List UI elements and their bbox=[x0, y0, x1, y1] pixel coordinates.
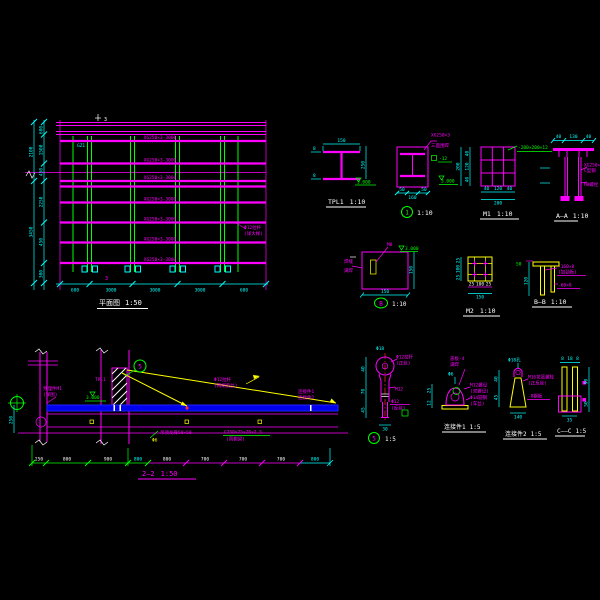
detail-cc: 8 18 8 90 50 35 C——C1:5 bbox=[555, 356, 590, 436]
detail-m2: 25 100 25 25 100 25 150 M21:10 bbox=[456, 257, 501, 316]
svg-text:3000: 3000 bbox=[106, 288, 117, 294]
svg-text:3.000: 3.000 bbox=[86, 395, 100, 401]
svg-text:160: 160 bbox=[408, 195, 416, 201]
svg-text:盖板-4: 盖板-4 bbox=[450, 355, 465, 362]
detail-m1: -200×200×12 40 120 40 200 40 120 40 200 … bbox=[456, 145, 553, 219]
svg-text:TPL1: TPL1 bbox=[95, 377, 106, 383]
svg-text:40: 40 bbox=[556, 134, 562, 140]
beam-label: XG250×3-3000 bbox=[144, 175, 177, 181]
svg-text:满焊: 满焊 bbox=[344, 267, 353, 274]
plan-bottom-dims: 600 3000 3000 3000 600 3 bbox=[56, 276, 269, 294]
svg-text:(详图): (详图) bbox=[43, 391, 57, 398]
plan-beam-labels: XG250×3-3000 XG250×3-3000 XG250×3-3000 X… bbox=[144, 135, 177, 263]
svg-text:Φ6: Φ6 bbox=[152, 438, 158, 444]
svg-text:8: 8 bbox=[313, 173, 316, 179]
svg-text:120: 120 bbox=[524, 277, 530, 285]
svg-text:700: 700 bbox=[239, 457, 247, 463]
beam-label: XG250×3-3000 bbox=[144, 197, 177, 203]
detail-tpl1: 150 8 8 250 3.000 TPL11:10 bbox=[311, 138, 376, 207]
svg-text:-160×8: -160×8 bbox=[558, 264, 575, 270]
lj1-title: 连接件11:5 bbox=[444, 423, 481, 431]
svg-text:Φ12: Φ12 bbox=[391, 399, 399, 405]
svg-text:Φ18孔: Φ18孔 bbox=[508, 357, 521, 364]
svg-text:3000: 3000 bbox=[150, 288, 161, 294]
svg-text:M12: M12 bbox=[395, 387, 403, 393]
svg-text:-60×8: -60×8 bbox=[558, 283, 572, 289]
detail-1-number: 1 bbox=[405, 210, 409, 217]
svg-text:XG250×3: XG250×3 bbox=[584, 163, 600, 169]
svg-text:800: 800 bbox=[63, 457, 71, 463]
svg-text:40: 40 bbox=[484, 186, 490, 192]
svg-text:250: 250 bbox=[9, 416, 15, 424]
svg-text:(详大样): (详大样) bbox=[244, 230, 263, 237]
svg-text:30: 30 bbox=[382, 427, 388, 433]
plan-view: 3 XG250×3-3000 XG250×3-3000 XG250×3-3000 bbox=[25, 114, 269, 309]
svg-text:Φ6: Φ6 bbox=[448, 372, 454, 378]
svg-text:(车丝): (车丝) bbox=[470, 400, 484, 407]
detail-aa: 40 130 40 XG250×3 C型钢 M8螺栓 A—A1:10 bbox=[540, 134, 600, 221]
svg-text:150: 150 bbox=[381, 289, 389, 295]
svg-text:满焊: 满焊 bbox=[450, 361, 459, 368]
lj2-title: 连接件21:5 bbox=[505, 430, 542, 438]
svg-text:25: 25 bbox=[456, 275, 462, 281]
svg-text:800: 800 bbox=[311, 457, 319, 463]
cad-viewport: 3 XG250×3-3000 XG250×3-3000 XG250×3-3000 bbox=[0, 0, 600, 600]
svg-text:150: 150 bbox=[476, 295, 484, 301]
svg-text:100: 100 bbox=[476, 282, 484, 288]
svg-text:(两端反丝): (两端反丝) bbox=[214, 382, 237, 389]
svg-text:-8钢板: -8钢板 bbox=[528, 393, 543, 400]
svg-text:2100: 2100 bbox=[29, 146, 35, 157]
svg-text:70: 70 bbox=[361, 389, 367, 395]
svg-text:50: 50 bbox=[584, 401, 590, 407]
svg-text:三面围焊: 三面围焊 bbox=[431, 142, 449, 149]
beam-label: XG250×3-3000 bbox=[144, 158, 177, 164]
background bbox=[0, 0, 600, 600]
plan-mark-3: 3 bbox=[105, 276, 108, 282]
svg-text:连接件1: 连接件1 bbox=[298, 388, 314, 395]
beam-label: XG250×3-3000 bbox=[144, 237, 177, 243]
svg-text:C250×75×20×2.5: C250×75×20×2.5 bbox=[224, 430, 262, 436]
svg-text:3.000: 3.000 bbox=[405, 246, 419, 252]
svg-text:450: 450 bbox=[39, 168, 45, 176]
svg-text:800: 800 bbox=[163, 457, 171, 463]
svg-text:Φ12拉杆: Φ12拉杆 bbox=[244, 224, 262, 231]
svg-text:50: 50 bbox=[399, 187, 405, 193]
plan-title: 平面图1:50 bbox=[99, 299, 142, 307]
svg-text:25: 25 bbox=[427, 388, 433, 394]
svg-text:40: 40 bbox=[361, 366, 367, 372]
svg-text:900: 900 bbox=[104, 457, 112, 463]
svg-text:M8: M8 bbox=[387, 242, 393, 248]
svg-text:(正丝): (正丝) bbox=[396, 360, 410, 367]
aa-title: A—A1:10 bbox=[556, 212, 588, 220]
svg-text:M12螺母: M12螺母 bbox=[470, 382, 488, 389]
svg-text:18: 18 bbox=[567, 356, 573, 362]
svg-text:120: 120 bbox=[494, 186, 502, 192]
svg-text:-200×200×12: -200×200×12 bbox=[518, 145, 548, 151]
elev-callout: 5 bbox=[138, 364, 142, 371]
cad-canvas: 3 XG250×3-3000 XG250×3-3000 XG250×3-3000 bbox=[0, 0, 600, 600]
svg-text:25: 25 bbox=[486, 282, 492, 288]
svg-text:800: 800 bbox=[134, 457, 142, 463]
svg-text:8: 8 bbox=[561, 356, 564, 362]
svg-text:3.000: 3.000 bbox=[357, 180, 371, 186]
b-plate-letter: B bbox=[379, 301, 383, 308]
cc-title: C——C1:5 bbox=[557, 428, 587, 435]
elevation-2-2: 5 3.000 预埋件M1 (详图) TPL1 Φ12拉杆 (两端反丝) 连接件… bbox=[8, 348, 348, 479]
svg-text:150: 150 bbox=[337, 138, 345, 144]
svg-text:700: 700 bbox=[277, 457, 285, 463]
column-grid-lines bbox=[73, 136, 238, 272]
svg-text:3450: 3450 bbox=[29, 226, 35, 237]
m2-title: M21:10 bbox=[466, 307, 496, 315]
svg-text:8: 8 bbox=[576, 356, 579, 362]
svg-text:1:10: 1:10 bbox=[417, 209, 433, 217]
detail-bb: -160×8 (加劲板) -60×8 50 120 B—B1:10 bbox=[516, 261, 586, 307]
svg-text:250: 250 bbox=[361, 161, 367, 169]
svg-text:(加劲板): (加劲板) bbox=[558, 269, 577, 276]
detail-1: XG250×3 三面围焊 -12 3.000 50 160 50 1 1:10 bbox=[395, 133, 458, 218]
svg-text:50: 50 bbox=[516, 262, 522, 268]
beam-label: XG250×3-3000 bbox=[144, 217, 177, 223]
svg-text:C型钢: C型钢 bbox=[584, 167, 596, 174]
m1-title: M11:10 bbox=[483, 210, 513, 218]
detail-lj1: Φ6 盖板-4 满焊 25 12 M12螺母 (双螺母) Φ14圆钢 (车丝) … bbox=[427, 355, 489, 432]
svg-text:Φ14圆钢: Φ14圆钢 bbox=[470, 394, 488, 401]
svg-text:150: 150 bbox=[409, 266, 415, 274]
svg-text:45: 45 bbox=[361, 407, 367, 413]
svg-text:25: 25 bbox=[469, 282, 475, 288]
svg-text:25: 25 bbox=[456, 258, 462, 264]
svg-text:120: 120 bbox=[465, 162, 471, 170]
svg-text:M16花篮螺栓: M16花篮螺栓 bbox=[528, 374, 555, 381]
svg-text:130: 130 bbox=[569, 134, 577, 140]
canopy-beam bbox=[47, 405, 338, 411]
svg-text:90: 90 bbox=[584, 379, 590, 385]
plan-note: Φ12拉杆 (详大样) bbox=[236, 223, 263, 237]
svg-text:250: 250 bbox=[35, 457, 43, 463]
tpl1-title: TPL11:10 bbox=[328, 198, 365, 206]
svg-text:12: 12 bbox=[427, 400, 433, 406]
svg-text:1500: 1500 bbox=[39, 144, 45, 155]
svg-text:40: 40 bbox=[465, 151, 471, 157]
detail-5-rod-end: Φ18 40 70 45 30 Φ12拉杆 (正丝) M12 Φ12 (反丝) … bbox=[361, 346, 414, 444]
svg-text:1:5: 1:5 bbox=[385, 436, 396, 443]
bb-title: B—B1:10 bbox=[534, 298, 566, 306]
svg-text:Φ18: Φ18 bbox=[376, 346, 384, 352]
detail-b-plate: M8 焊缝 满焊 3.000 150 150 B 1:10 bbox=[344, 242, 419, 308]
svg-text:600: 600 bbox=[240, 288, 248, 294]
plan-column-label: GZ1 bbox=[77, 143, 85, 149]
svg-text:35: 35 bbox=[567, 418, 573, 424]
svg-text:-12: -12 bbox=[439, 156, 447, 162]
svg-text:(正反丝): (正反丝) bbox=[528, 380, 547, 387]
svg-text:连接件2: 连接件2 bbox=[298, 394, 314, 401]
wall-hatch bbox=[112, 368, 127, 406]
svg-text:40: 40 bbox=[465, 177, 471, 183]
svg-text:吊顶龙骨50×50: 吊顶龙骨50×50 bbox=[160, 429, 192, 436]
svg-text:(反丝): (反丝) bbox=[391, 405, 405, 412]
column-base-plates bbox=[82, 266, 231, 272]
elev-bottom-dims: 250 800 900 800 800 700 700 700 800 bbox=[29, 445, 333, 466]
detail-lj2: Φ18孔 40 45 M16花篮螺栓 (正反丝) -8钢板 140 连接件21:… bbox=[494, 357, 555, 440]
svg-text:50: 50 bbox=[421, 187, 427, 193]
svg-text:600: 600 bbox=[39, 126, 45, 134]
svg-text:3000: 3000 bbox=[195, 288, 206, 294]
plan-left-dims: 600 1500 450 2250 450 300 2100 3450 bbox=[29, 119, 48, 290]
svg-text:40: 40 bbox=[586, 134, 592, 140]
svg-text:600: 600 bbox=[71, 288, 79, 294]
svg-text:(雨棚梁): (雨棚梁) bbox=[226, 436, 245, 443]
svg-text:Φ12拉杆: Φ12拉杆 bbox=[214, 376, 232, 383]
svg-text:Φ12拉杆: Φ12拉杆 bbox=[396, 354, 414, 361]
elev-title: 2—21:50 bbox=[142, 470, 178, 478]
svg-text:2250: 2250 bbox=[39, 196, 45, 207]
svg-text:焊缝: 焊缝 bbox=[344, 258, 353, 265]
svg-text:1:10: 1:10 bbox=[392, 301, 407, 308]
svg-text:预埋件M1: 预埋件M1 bbox=[43, 385, 62, 392]
svg-text:450: 450 bbox=[39, 238, 45, 246]
svg-text:40: 40 bbox=[494, 376, 500, 382]
svg-text:200: 200 bbox=[494, 201, 502, 207]
svg-text:8: 8 bbox=[313, 146, 316, 152]
svg-text:45: 45 bbox=[494, 395, 500, 401]
svg-text:40: 40 bbox=[507, 186, 513, 192]
svg-text:100: 100 bbox=[456, 265, 462, 273]
beam-label: XG250×3-3000 bbox=[144, 135, 177, 141]
svg-text:3.000: 3.000 bbox=[441, 179, 455, 185]
svg-text:XG250×3: XG250×3 bbox=[431, 133, 450, 139]
svg-text:140: 140 bbox=[514, 415, 522, 421]
svg-text:200: 200 bbox=[456, 162, 462, 170]
svg-text:M8螺栓: M8螺栓 bbox=[584, 181, 599, 188]
svg-text:700: 700 bbox=[201, 457, 209, 463]
detail-5-number: 5 bbox=[372, 436, 376, 443]
svg-text:300: 300 bbox=[39, 270, 45, 278]
beam-label: XG250×3-3000 bbox=[144, 257, 177, 263]
svg-text:(双螺母): (双螺母) bbox=[470, 388, 489, 395]
